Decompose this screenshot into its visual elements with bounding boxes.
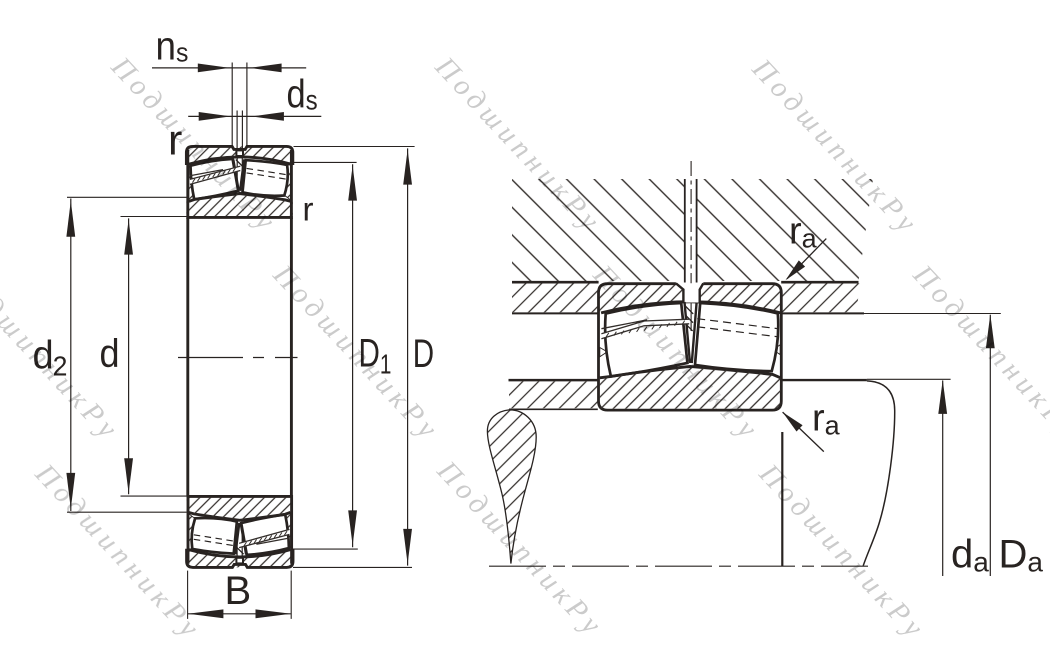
svg-text:d: d xyxy=(100,332,120,376)
svg-text:D: D xyxy=(413,332,434,376)
svg-text:r: r xyxy=(303,191,314,228)
svg-text:B: B xyxy=(225,569,252,613)
